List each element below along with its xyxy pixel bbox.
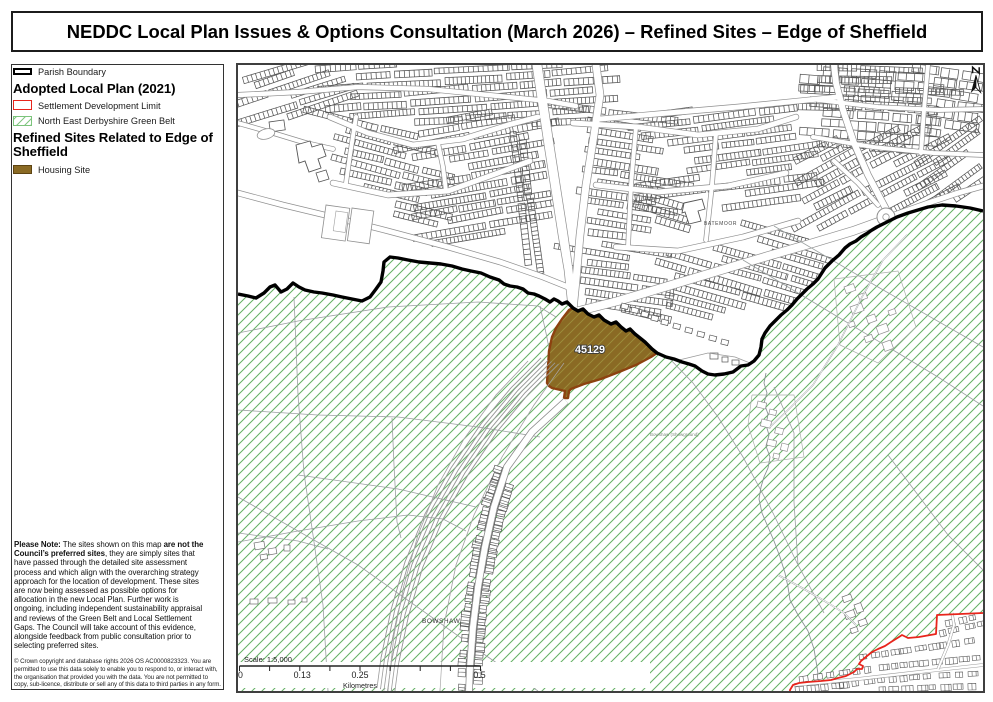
svg-text:BOWSHAW: BOWSHAW: [422, 618, 461, 625]
svg-text:45129: 45129: [574, 344, 604, 356]
svg-text:0.13: 0.13: [293, 670, 310, 680]
svg-text:BATEMOOR: BATEMOOR: [704, 221, 737, 227]
svg-text:0.25: 0.25: [351, 670, 368, 680]
svg-text:0: 0: [238, 670, 243, 680]
svg-text:Kilometres: Kilometres: [343, 681, 377, 690]
svg-text:Bowshaw (Showground): Bowshaw (Showground): [650, 432, 699, 437]
svg-text:0.5: 0.5: [473, 670, 485, 680]
svg-text:Scale: 1:5,000: Scale: 1:5,000: [244, 655, 292, 664]
